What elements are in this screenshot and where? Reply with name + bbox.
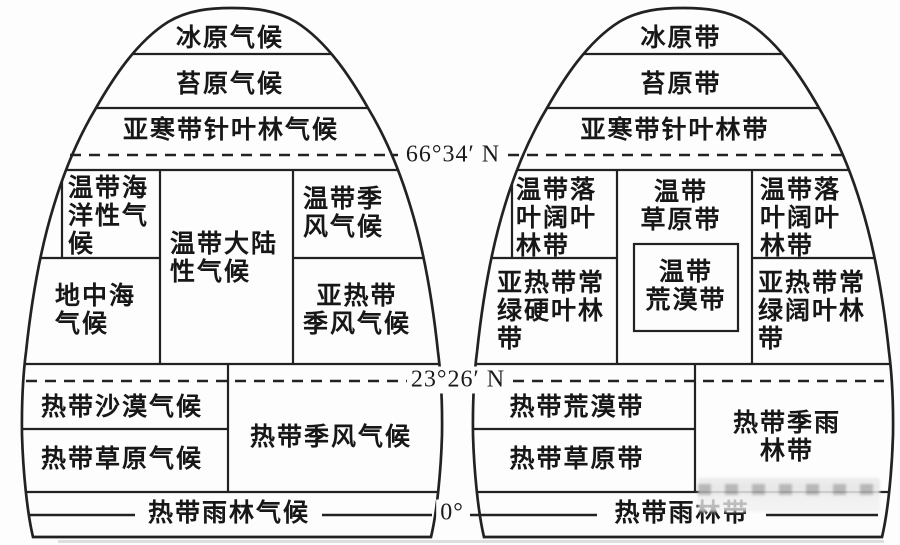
zone-label-mediterranean: 地中海 气候 <box>55 283 136 339</box>
zone-label-tropical-desert-climate: 热带沙漠气候 <box>41 394 203 422</box>
zone-label-tropical-monsoon-climate: 热带季风气候 <box>250 424 412 452</box>
belt-label-tropical-grassland: 热带草原带 <box>509 446 644 474</box>
belt-label-tropical-desert: 热带荒漠带 <box>509 394 644 422</box>
zone-label-subarctic-climate: 亚寒带针叶林气候 <box>123 117 339 145</box>
zone-label-tropical-rainforest-climate: 热带雨林气候 <box>148 500 310 528</box>
ideal-continent-diagram: 冰原气候 苔原气候 亚寒带针叶林气候 温带海 洋性气 候 温带大陆 性气候 温带… <box>0 0 900 545</box>
zone-label-temperate-oceanic: 温带海 洋性气 候 <box>68 175 149 259</box>
belt-label-tundra: 苔原带 <box>640 71 721 99</box>
zone-label-ice-cap-climate: 冰原气候 <box>176 25 284 53</box>
belt-label-ice-cap: 冰原带 <box>640 25 721 53</box>
zone-label-temperate-monsoon: 温带季 风气候 <box>303 186 384 242</box>
zone-label-tropical-savanna-climate: 热带草原气候 <box>41 446 203 474</box>
zone-label-tundra-climate: 苔原气候 <box>176 71 284 99</box>
belt-label-deciduous-west: 温带落 叶阔叶 林带 <box>516 177 597 261</box>
tropic-of-cancer-label: 23°26′ N <box>407 367 509 394</box>
scan-artifact-strip <box>58 540 884 543</box>
belt-label-deciduous-east: 温带落 叶阔叶 林带 <box>760 177 841 261</box>
belt-label-sclerophyllous: 亚热带常 绿硬叶林 带 <box>497 270 605 354</box>
blurred-watermark <box>698 478 880 512</box>
belt-label-temperate-desert: 温带 荒漠带 <box>645 259 726 315</box>
zone-label-subtropical-monsoon: 亚热带 季风气候 <box>303 283 411 339</box>
belt-label-temperate-grassland: 温带 草原带 <box>640 179 721 235</box>
equator-label: 0° <box>436 500 468 527</box>
belt-label-evergreen-broadleaf: 亚热带常 绿阔叶林 带 <box>758 270 866 354</box>
arctic-circle-label: 66°34′ N <box>402 142 504 169</box>
zone-label-temperate-continental: 温带大陆 性气候 <box>170 231 278 287</box>
belt-label-seasonal-rainforest: 热带季雨林带 <box>731 410 844 466</box>
belt-label-subarctic: 亚寒带针叶林带 <box>580 117 769 145</box>
